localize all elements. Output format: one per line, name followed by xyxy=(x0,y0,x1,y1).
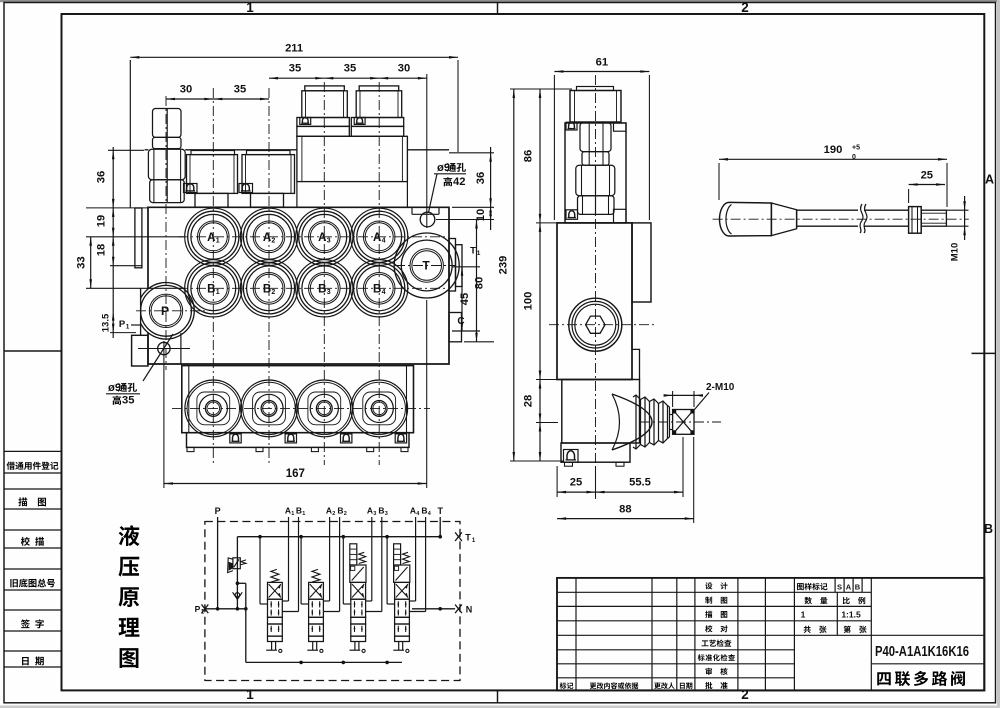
svg-text:A: A xyxy=(410,506,416,516)
svg-text:1: 1 xyxy=(246,687,254,702)
svg-text:2: 2 xyxy=(741,687,749,702)
svg-text:211: 211 xyxy=(285,43,303,55)
svg-text:10: 10 xyxy=(475,209,487,221)
svg-text:T: T xyxy=(437,506,443,516)
svg-text:S: S xyxy=(837,583,842,592)
svg-text:3: 3 xyxy=(385,511,388,517)
svg-text:2: 2 xyxy=(332,511,335,517)
svg-text:190: 190 xyxy=(824,144,843,156)
svg-text:1: 1 xyxy=(126,324,130,331)
svg-text:T: T xyxy=(422,259,430,273)
svg-text:2-M10: 2-M10 xyxy=(706,382,735,393)
svg-text:1: 1 xyxy=(801,610,806,620)
svg-text:1: 1 xyxy=(477,250,481,257)
svg-text:2: 2 xyxy=(271,289,275,296)
svg-text:B: B xyxy=(207,283,215,295)
svg-text:A: A xyxy=(367,506,373,516)
svg-text:30: 30 xyxy=(398,63,410,75)
svg-text:ø9: ø9 xyxy=(437,162,450,174)
svg-text:3: 3 xyxy=(327,289,331,296)
svg-text:C: C xyxy=(457,316,464,327)
svg-text:+5: +5 xyxy=(852,145,860,152)
svg-text:86: 86 xyxy=(523,150,535,162)
svg-text:42: 42 xyxy=(453,176,465,188)
svg-text:B: B xyxy=(296,506,302,516)
svg-text:A: A xyxy=(207,232,215,244)
svg-text:36: 36 xyxy=(475,172,487,184)
svg-text:2: 2 xyxy=(344,511,347,517)
svg-text:1: 1 xyxy=(291,511,294,517)
svg-text:19: 19 xyxy=(96,215,108,227)
svg-text:239: 239 xyxy=(498,256,510,275)
svg-text:B: B xyxy=(318,283,326,295)
svg-text:B: B xyxy=(855,583,861,592)
svg-text:35: 35 xyxy=(344,63,356,75)
svg-text:35: 35 xyxy=(122,395,134,407)
svg-text:N: N xyxy=(466,605,473,615)
svg-text:61: 61 xyxy=(596,57,608,69)
svg-text:80: 80 xyxy=(474,277,486,289)
svg-text:4: 4 xyxy=(382,289,386,296)
svg-text:100: 100 xyxy=(523,292,535,311)
svg-text:18: 18 xyxy=(96,244,108,256)
svg-text:1:1.5: 1:1.5 xyxy=(841,610,861,620)
svg-text:M10: M10 xyxy=(950,243,961,261)
svg-text:1: 1 xyxy=(216,237,220,244)
svg-text:88: 88 xyxy=(619,504,631,516)
svg-text:3: 3 xyxy=(327,237,331,244)
svg-text:A: A xyxy=(373,232,381,244)
svg-text:T: T xyxy=(465,533,471,543)
svg-text:ø9: ø9 xyxy=(108,382,121,394)
svg-text:A: A xyxy=(985,173,994,187)
svg-text:167: 167 xyxy=(286,468,305,480)
svg-text:2: 2 xyxy=(271,237,275,244)
svg-text:13.5: 13.5 xyxy=(100,313,111,332)
svg-text:45: 45 xyxy=(459,293,471,305)
svg-text:P: P xyxy=(195,604,201,614)
svg-text:0: 0 xyxy=(852,154,856,161)
svg-text:B: B xyxy=(373,283,381,295)
svg-text:1: 1 xyxy=(216,289,220,296)
svg-text:1: 1 xyxy=(246,0,254,15)
svg-text:36: 36 xyxy=(96,171,108,183)
svg-text:B: B xyxy=(337,506,343,516)
svg-text:25: 25 xyxy=(570,477,582,489)
svg-text:30: 30 xyxy=(180,84,192,96)
svg-text:25: 25 xyxy=(921,170,933,182)
svg-text:A: A xyxy=(326,506,332,516)
svg-text:B: B xyxy=(984,522,993,536)
svg-text:A: A xyxy=(318,232,326,244)
svg-text:P40-A1A1K16K16: P40-A1A1K16K16 xyxy=(875,643,969,660)
svg-text:B: B xyxy=(421,506,427,516)
svg-text:55.5: 55.5 xyxy=(629,477,651,489)
svg-text:28: 28 xyxy=(523,395,535,407)
svg-text:B: B xyxy=(378,506,384,516)
svg-text:A: A xyxy=(846,583,852,592)
svg-text:A: A xyxy=(285,506,291,516)
svg-text:P: P xyxy=(161,304,169,318)
svg-text:T: T xyxy=(470,246,476,257)
svg-text:2: 2 xyxy=(741,0,749,15)
svg-text:P: P xyxy=(215,506,221,516)
svg-text:35: 35 xyxy=(289,63,301,75)
svg-text:4: 4 xyxy=(382,237,386,244)
svg-text:33: 33 xyxy=(76,256,88,268)
svg-text:B: B xyxy=(263,283,271,295)
svg-text:35: 35 xyxy=(234,84,246,96)
svg-text:A: A xyxy=(263,232,271,244)
svg-text:1: 1 xyxy=(302,511,305,517)
svg-text:3: 3 xyxy=(373,511,376,517)
